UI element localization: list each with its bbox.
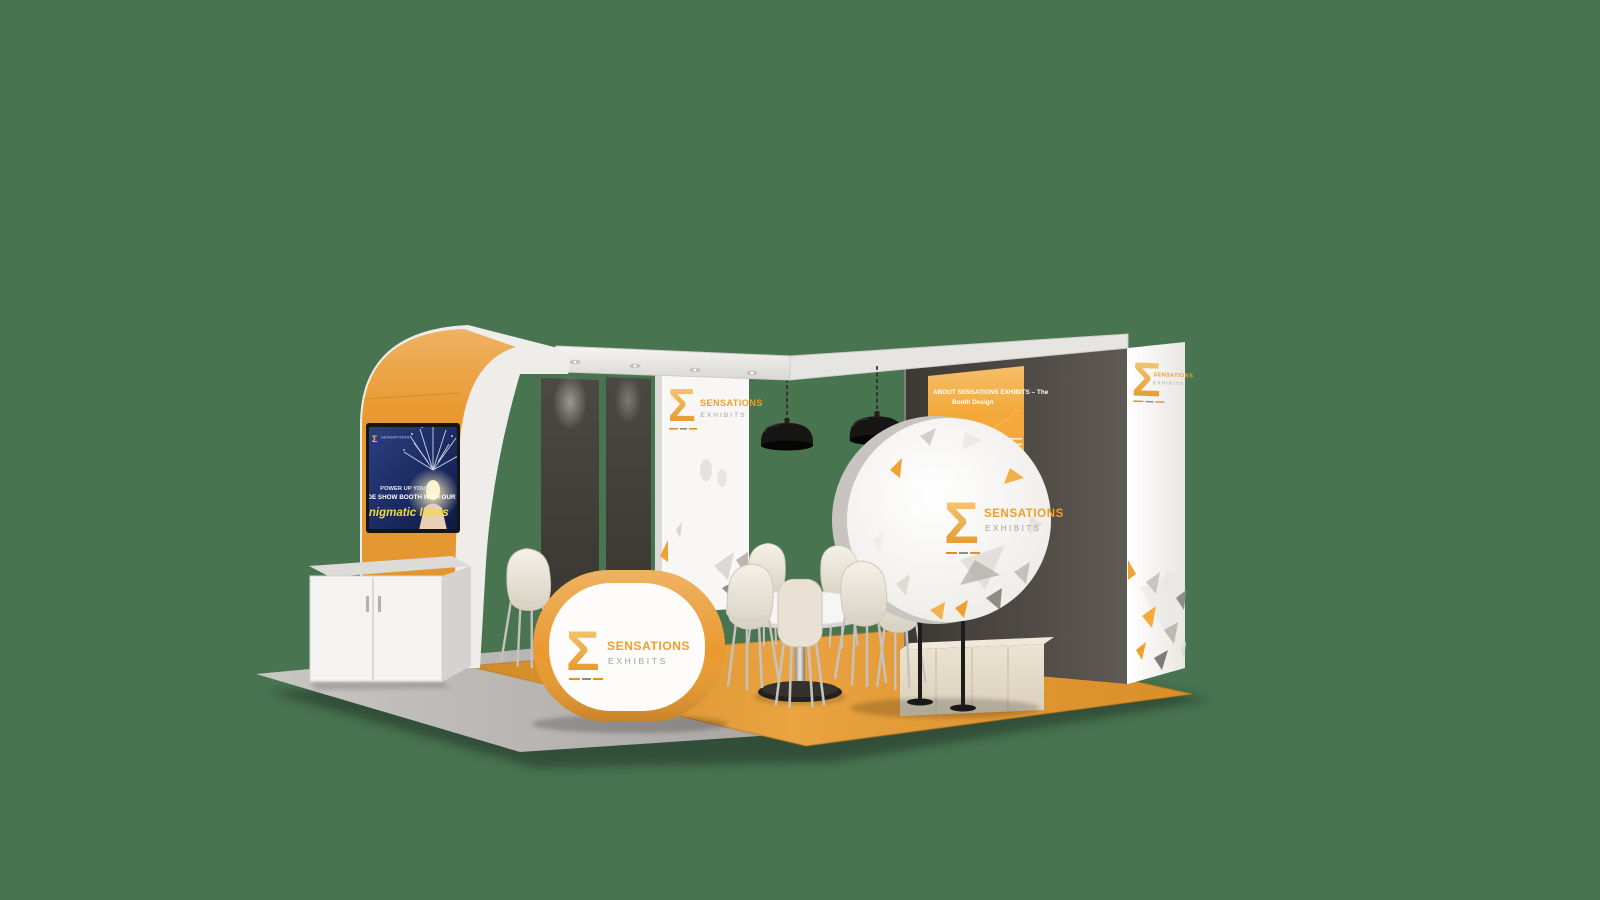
- table-base-top: [762, 681, 838, 697]
- logo-subtitle: EXHIBITS: [701, 412, 747, 419]
- spotlight-glow: [615, 376, 641, 424]
- screen-line3: Enigmatic Ideas: [361, 507, 449, 519]
- logo-subtitle: EXHIBITS: [608, 656, 668, 666]
- poster-heading-line2: Booth Design: [952, 399, 994, 406]
- logo-tagline-mark: [569, 678, 580, 680]
- screen-brand-name: SENSATIONS: [381, 435, 410, 440]
- logo-tagline-mark: [582, 678, 591, 680]
- green-background: [0, 0, 1600, 900]
- logo-name: SENSATIONS: [984, 508, 1064, 520]
- spotlight-glow: [553, 374, 587, 430]
- screen-line1: POWER UP YOUR: [380, 486, 431, 492]
- logo-tagline-mark: [970, 552, 980, 554]
- booth-scene: ABOUT SENSATIONS EXHIBITS – The Booth De…: [0, 0, 1600, 900]
- logo-name: SENSATIONS: [700, 398, 763, 408]
- logo-tagline-mark: [1145, 401, 1153, 403]
- poster-heading-line1: ABOUT SENSATIONS EXHIBITS – The: [933, 389, 1049, 396]
- tv-screen-content: Σ SENSATIONS POWER UP YOUR TRADE SHOW BO…: [354, 423, 459, 530]
- disc-pole-base: [907, 699, 933, 706]
- storage-cabinet: [309, 556, 471, 690]
- logo-tagline-mark: [959, 552, 968, 554]
- logo-tagline-mark: [689, 428, 697, 430]
- cabinet-side: [442, 566, 471, 682]
- screen-line2: TRADE SHOW BOOTH WITH OUR: [354, 494, 456, 501]
- booth-render-stage: ABOUT SENSATIONS EXHIBITS – The Booth De…: [0, 0, 1600, 900]
- sensations-sigma-icon: Σ: [944, 491, 979, 556]
- cabinet-front: [310, 576, 442, 682]
- sensations-sigma-icon: Σ: [566, 619, 600, 682]
- arch-tv: Σ SENSATIONS POWER UP YOUR TRADE SHOW BO…: [354, 423, 460, 533]
- cabinet-handle: [366, 596, 369, 612]
- disc-shadow: [850, 698, 1040, 718]
- logo-tagline-mark: [669, 428, 678, 430]
- sensations-sigma-icon: Σ: [372, 434, 378, 444]
- logo-tagline-mark: [593, 678, 603, 680]
- disc-pole-base: [950, 705, 976, 712]
- right-tower-panel: Σ SENSATIONS EXHIBITS: [1128, 342, 1194, 684]
- logo-tagline-mark: [680, 428, 687, 430]
- logo-subtitle: EXHIBITS: [985, 524, 1042, 533]
- sensations-sigma-icon: Σ: [668, 379, 696, 431]
- logo-name: SENSATIONS: [607, 639, 690, 653]
- logo-tagline-mark: [946, 552, 957, 554]
- cabinet-handle: [378, 596, 381, 612]
